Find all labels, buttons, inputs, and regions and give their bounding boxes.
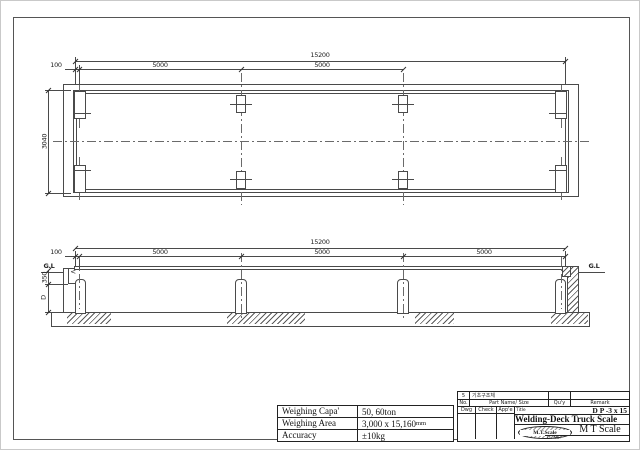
col-no: No.	[458, 400, 470, 406]
centerline	[241, 253, 242, 321]
item-remark	[571, 392, 629, 399]
load-cell	[236, 171, 246, 189]
footing-hatch	[227, 313, 305, 324]
load-cell-tick	[549, 113, 566, 114]
title-lower: Dwg Check App'e Title D P -3 x 15 Weldin…	[458, 407, 629, 439]
spec-value: ±10kg	[358, 430, 453, 441]
pedestal	[75, 279, 86, 314]
approval-header: Check	[476, 407, 496, 414]
centerline	[561, 257, 562, 309]
col-part: Part Name/ Size	[470, 400, 549, 406]
spec-value: 3,000 x 15,160mm	[358, 418, 453, 429]
item-qty	[549, 392, 571, 399]
load-cell-tick	[230, 179, 252, 180]
dim-label: 5000	[302, 62, 342, 69]
dim-label: 5000	[140, 62, 180, 69]
footing-hatch	[67, 313, 111, 324]
load-cell	[398, 171, 408, 189]
dim-label: 5000	[464, 249, 504, 256]
approval-header: Dwg	[458, 407, 475, 414]
load-cell-tick	[74, 170, 91, 171]
col-qty: Qu'y	[549, 400, 571, 406]
deck-slab	[74, 266, 565, 270]
approval-col-dwg: Dwg	[458, 407, 476, 439]
centerline	[403, 253, 404, 321]
dim-label: 5000	[302, 249, 342, 256]
footing-hatch	[551, 313, 588, 324]
gl-label: G.L	[583, 263, 605, 270]
load-cell-tick	[74, 113, 91, 114]
dim-label: 15200	[300, 52, 340, 59]
dim-label: 100	[47, 62, 65, 69]
spec-value-text: ±10kg	[362, 431, 385, 441]
pit-wall-left	[63, 268, 64, 313]
dim-line	[65, 256, 565, 257]
table-row: Weighing Area 3,000 x 15,160mm	[278, 417, 453, 429]
item-name: 기초구조체	[470, 392, 549, 399]
load-cell-tick	[392, 104, 414, 105]
dim-label: 100	[47, 249, 65, 256]
model-number: D P -3 x 15	[526, 407, 629, 414]
approval-col-check: Check	[476, 407, 497, 439]
ext-line	[79, 259, 80, 269]
dno-divider: D. No.	[545, 435, 629, 442]
load-cell	[74, 91, 86, 119]
spec-label: Weighing Capa'	[278, 406, 358, 417]
dim-label: 3040	[42, 124, 49, 160]
dim-label: D	[41, 288, 48, 308]
footing	[51, 312, 590, 327]
approval-header: App'e	[497, 407, 514, 414]
approval-col-appe: App'e	[497, 407, 515, 439]
spec-label: Weighing Area	[278, 418, 358, 429]
ext-line	[565, 251, 566, 266]
footing-hatch	[415, 313, 454, 324]
title-block: 5 기초구조체 No. Part Name/ Size Qu'y Remark …	[457, 391, 630, 442]
spec-label: Accuracy	[278, 430, 358, 441]
drawing-sheet: 15200 100 5000 5000 3040 < G.L G.L	[0, 0, 640, 450]
table-row: Accuracy ±10kg	[278, 429, 453, 441]
load-cell	[555, 91, 567, 119]
load-cell-pointer-icon: <	[69, 269, 77, 276]
dim-label: 5000	[140, 249, 180, 256]
ground-line	[579, 272, 605, 273]
title-area: Title D P -3 x 15 Welding-Deck Truck Sca…	[515, 407, 629, 439]
sheet-border	[13, 17, 630, 440]
spec-unit: mm	[416, 420, 426, 427]
dno-label: D. No.	[545, 436, 561, 442]
load-cell-tick	[230, 104, 252, 105]
load-cell-tick	[392, 179, 414, 180]
corner-block	[562, 266, 571, 277]
spec-table: Weighing Capa' 50, 60ton Weighing Area 3…	[277, 405, 454, 442]
dim-line	[65, 69, 403, 70]
company-row: M.T.Scale M T Scale D. No.	[515, 425, 629, 439]
company-name: M T Scale	[573, 425, 627, 435]
spec-value-text: 50, 60ton	[362, 407, 396, 417]
spec-value: 50, 60ton	[358, 406, 453, 417]
table-row: Weighing Capa' 50, 60ton	[278, 406, 453, 417]
parts-list-row: 5 기초구조체	[458, 392, 629, 400]
item-no: 5	[458, 392, 470, 399]
dim-label: 15200	[300, 239, 340, 246]
centerline	[53, 141, 589, 142]
spec-value-text: 3,000 x 15,160	[362, 419, 416, 429]
load-cell-tick	[549, 170, 566, 171]
